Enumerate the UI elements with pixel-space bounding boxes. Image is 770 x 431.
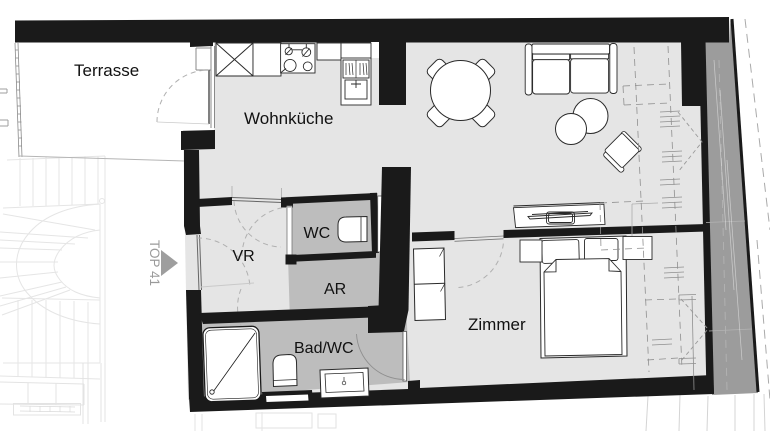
svg-text:Zimmer: Zimmer (468, 315, 526, 334)
svg-text:Bad/WC: Bad/WC (294, 340, 354, 357)
svg-text:TOP 41: TOP 41 (147, 240, 162, 286)
svg-text:AR: AR (324, 281, 346, 298)
svg-text:WC: WC (304, 225, 331, 242)
svg-text:Terrasse: Terrasse (74, 61, 139, 80)
svg-text:VR: VR (233, 248, 255, 265)
svg-text:Wohnküche: Wohnküche (244, 109, 333, 128)
